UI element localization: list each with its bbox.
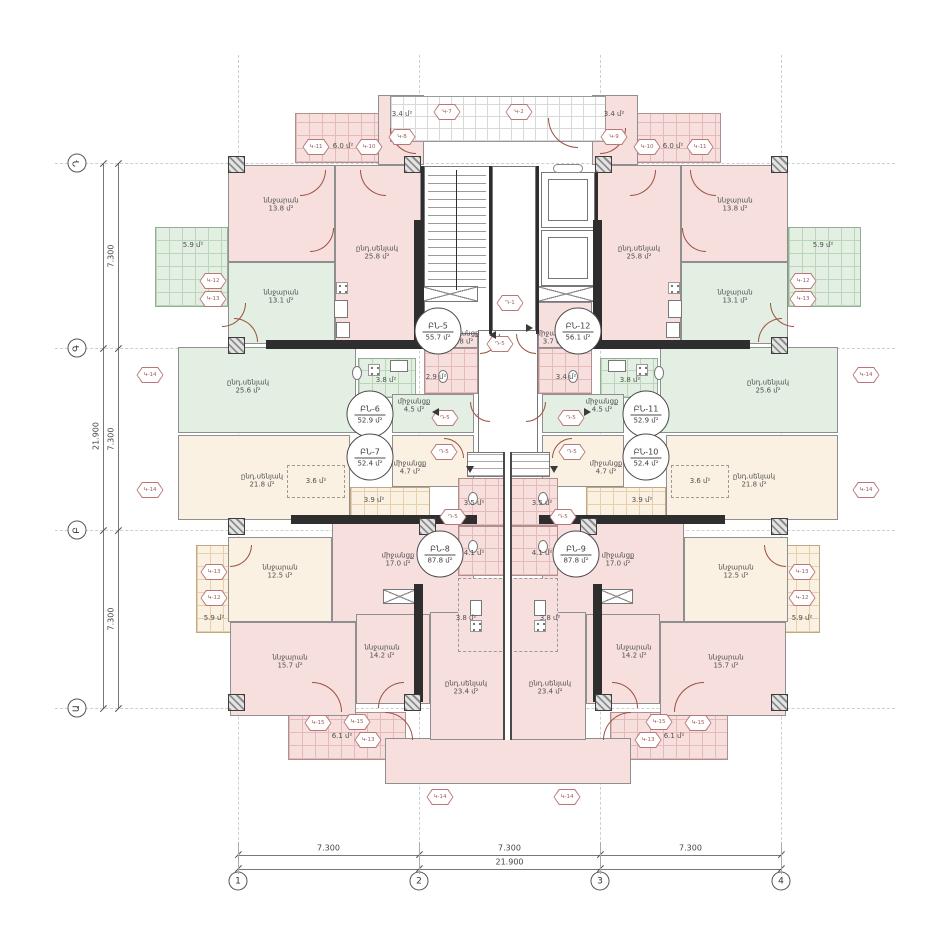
room-label: ննջարան13.8 մ² (263, 197, 298, 214)
hex-marker: Կ-14 (137, 482, 164, 498)
hex-marker-label: Դ-5 (432, 445, 457, 459)
apartment-badge: ԲՆ-887.8 մ² (417, 531, 464, 578)
apartment-area: 52.4 մ² (357, 458, 382, 467)
hex-marker-label: Կ-2 (507, 105, 532, 119)
hex-marker-label: Կ-14 (138, 368, 163, 382)
apartment-badge: ԲՆ-752.4 մ² (347, 434, 394, 481)
apartment-area: 52.4 մ² (633, 458, 658, 467)
room-label: 3.8 մ² (376, 376, 397, 384)
room-label: միջանցք4.5 մ² (398, 398, 431, 415)
column (404, 694, 421, 711)
apartment-id: ԲՆ-10 (630, 447, 662, 458)
room-label: 3.6 մ² (306, 477, 327, 485)
apartment-id: ԲՆ-12 (562, 321, 594, 332)
wall (414, 584, 423, 702)
room-label: ընդ.սենյակ25.8 մ² (618, 245, 660, 262)
door-arc (603, 712, 631, 740)
hex-marker-label: Կ-13 (636, 733, 661, 747)
room-label: 3.9 մ² (632, 496, 653, 504)
hex-marker: Կ-13 (789, 564, 816, 580)
dimension-line (238, 869, 781, 870)
room-label: ննջարան12.5 մ² (262, 564, 297, 581)
room-label: ընդ.սենյակ21.8 մ² (241, 473, 283, 490)
hex-marker-label: Կ-13 (356, 733, 381, 747)
hex-marker-label: Կ-12 (202, 591, 227, 605)
room-label: ննջարան13.1 մ² (717, 289, 752, 306)
room-label: 5.9 մ² (183, 241, 204, 249)
grid-bubble-label: 1 (235, 876, 241, 886)
toilet-icon (654, 366, 664, 380)
grid-bubble-label: 2 (416, 876, 422, 886)
hex-marker: Կ-15 (685, 715, 712, 731)
wall (489, 166, 492, 334)
room-label: ննջարան15.7 մ² (708, 654, 743, 671)
column (228, 694, 245, 711)
hex-marker: Կ-12 (790, 273, 817, 289)
hex-marker-label: Կ-10 (635, 140, 660, 154)
room-label: 6.1 մ² (332, 732, 353, 740)
hex-marker: Կ-14 (427, 789, 454, 805)
door-arc (385, 712, 413, 740)
door-direction-icon (526, 324, 533, 332)
hex-marker: Կ-9 (601, 129, 628, 145)
hex-marker: Կ-14 (853, 482, 880, 498)
hex-marker: Կ-10 (356, 139, 383, 155)
hex-marker-label: Կ-14 (854, 483, 879, 497)
hex-marker-label: Կ-14 (428, 790, 453, 804)
hex-marker: Դ-5 (550, 509, 577, 525)
column (595, 694, 612, 711)
grid-bubble-label: Գ (72, 345, 82, 352)
hex-marker: Կ-11 (687, 139, 714, 155)
stove-icon (368, 364, 380, 376)
elevator-2-car (548, 237, 588, 279)
hex-marker: Դ-1 (497, 295, 524, 311)
apartment-area: 55.7 մ² (425, 332, 450, 341)
shaft (538, 286, 594, 302)
terrace-6-0-right (636, 113, 721, 163)
hex-marker-label: Կ-13 (202, 565, 227, 579)
grid-bubble-row: Գ (68, 339, 87, 358)
room-label: 3.4 մ² (392, 110, 413, 118)
hex-marker-label: Կ-13 (790, 565, 815, 579)
hex-marker-label: Կ-12 (201, 274, 226, 288)
room-label: 3.5 մ² (464, 499, 485, 507)
wall (456, 170, 457, 290)
hex-marker-label: Կ-11 (688, 140, 713, 154)
room-label: 6.0 մ² (333, 142, 354, 150)
apartment-area: 52.9 մ² (633, 415, 658, 424)
hex-marker-label: Կ-10 (357, 140, 382, 154)
column (771, 518, 788, 535)
hex-marker: Կ-11 (303, 139, 330, 155)
hex-marker: Կ-12 (789, 590, 816, 606)
hex-marker: Կ-12 (201, 590, 228, 606)
column (771, 156, 788, 173)
hex-marker-label: Դ-5 (488, 337, 513, 351)
floor-plan-canvas: +7.350 3-րդ հարկ 6.0 մ²6.0 մ²3.4 մ²3.4 մ… (0, 0, 950, 950)
grid-bubble-label: Ա (72, 705, 82, 712)
grid-bubble-row: Դ (68, 154, 87, 173)
hex-marker-label: Դ-5 (551, 510, 576, 524)
hex-marker-label: Կ-12 (791, 274, 816, 288)
grid-bubble-row: Բ (68, 521, 87, 540)
hex-marker: Դ-5 (431, 444, 458, 460)
bath-3-4-right (538, 348, 592, 394)
sink-icon (390, 360, 408, 372)
sink-icon (668, 300, 682, 318)
dimension-value: 7.300 (107, 428, 116, 451)
apartment-id: ԲՆ-9 (560, 544, 592, 555)
hex-marker-label: Կ-14 (555, 790, 580, 804)
room-label: 3.4 մ² (556, 373, 577, 381)
hex-marker-label: Կ-15 (686, 716, 711, 730)
bath-2-9-left (424, 348, 478, 394)
room-label: 3.9 մ² (364, 496, 385, 504)
sink-icon (666, 322, 680, 338)
room-label: միջանցք4.7 մ² (394, 460, 427, 477)
room-label: ննջարան14.2 մ² (616, 644, 651, 661)
hex-marker-label: Դ-5 (441, 510, 466, 524)
room-label: 6.1 մ² (664, 732, 685, 740)
terrace-bottom (385, 738, 631, 784)
column (771, 694, 788, 711)
hex-marker-label: Կ-13 (201, 292, 226, 306)
room-label: ընդ.սենյակ23.4 մ² (445, 680, 487, 697)
apartment-id: ԲՆ-6 (354, 404, 386, 415)
hex-marker-label: Կ-15 (306, 716, 331, 730)
hex-marker-label: Դ-1 (498, 296, 523, 310)
hex-marker-label: Դ-5 (560, 445, 585, 459)
toilet-icon (352, 366, 362, 380)
apartment-badge: ԲՆ-987.8 մ² (553, 531, 600, 578)
party-wall (503, 452, 512, 740)
apartment-id: ԲՆ-11 (630, 404, 662, 415)
dimension-value: 7.300 (107, 608, 116, 631)
shaft (422, 286, 478, 302)
hex-marker-label: Կ-14 (138, 483, 163, 497)
extension-line (419, 842, 420, 874)
apartment-area: 56.1 մ² (565, 332, 590, 341)
apartment-badge: ԲՆ-1152.9 մ² (623, 391, 670, 438)
wardrobe (383, 589, 416, 604)
hex-marker: Կ-14 (554, 789, 581, 805)
hex-marker-label: Կ-8 (390, 130, 415, 144)
room-label: ննջարան14.2 մ² (364, 644, 399, 661)
hex-marker: Դ-5 (558, 410, 585, 426)
grid-bubble-label: Դ (72, 160, 82, 167)
hex-marker: Կ-13 (635, 732, 662, 748)
extension-line (781, 842, 782, 874)
hex-marker-label: Կ-7 (435, 105, 460, 119)
column (404, 156, 421, 173)
hex-marker: Կ-15 (646, 714, 673, 730)
room-label: միջանցք17.0 մ² (382, 552, 415, 569)
room-label: ննջարան12.5 մ² (718, 564, 753, 581)
grid-bubble-column: 2 (410, 872, 429, 891)
dimension-value: 7.300 (498, 844, 521, 853)
room-label: 3.4 մ² (604, 110, 625, 118)
room-label: ընդ.սենյակ25.6 մ² (227, 379, 269, 396)
hex-marker: Կ-13 (355, 732, 382, 748)
hex-marker-label: Կ-13 (791, 292, 816, 306)
room-label: 3.8 մ² (540, 614, 561, 622)
room-label: ընդ.սենյակ23.4 մ² (529, 680, 571, 697)
apartment-id: ԲՆ-8 (424, 544, 456, 555)
wall (595, 168, 598, 290)
elevator-1-car (548, 179, 588, 221)
room-label: 5.9 մ² (813, 241, 834, 249)
apartment-badge: ԲՆ-1256.1 մ² (555, 308, 602, 355)
dimension-value: 7.300 (317, 844, 340, 853)
hex-marker-label: Կ-14 (854, 368, 879, 382)
sink-icon (336, 322, 350, 338)
grid-bubble-row: Ա (68, 699, 87, 718)
extension-line (600, 842, 601, 874)
hex-marker: Կ-14 (853, 367, 880, 383)
room-label: միջանցք17.0 մ² (602, 552, 635, 569)
column (595, 156, 612, 173)
hex-marker-label: Դ-5 (559, 411, 584, 425)
elevator-tag (553, 164, 583, 173)
room-label: ընդ.սենյակ25.8 մ² (356, 245, 398, 262)
room-label: 2.9 մ² (426, 373, 447, 381)
hex-marker: Կ-15 (344, 714, 371, 730)
room-label: ննջարան15.7 մ² (272, 654, 307, 671)
hex-marker-label: Կ-12 (790, 591, 815, 605)
grid-bubble-column: 1 (229, 872, 248, 891)
wardrobe (600, 589, 633, 604)
apartment-id: ԲՆ-5 (422, 321, 454, 332)
door-direction-icon (550, 466, 558, 473)
room-label: ընդ.սենյակ21.8 մ² (733, 473, 775, 490)
hex-marker-label: Կ-9 (602, 130, 627, 144)
dimension-line (103, 163, 104, 708)
stair-treads (428, 172, 486, 288)
hex-marker: Դ-5 (559, 444, 586, 460)
dimension-line (118, 163, 119, 708)
grid-bubble-column: 3 (591, 872, 610, 891)
room-label: 3.5 մ² (532, 499, 553, 507)
apartment-id: ԲՆ-7 (354, 447, 386, 458)
grid-bubble-label: 3 (597, 876, 603, 886)
hex-marker: Կ-2 (506, 104, 533, 120)
column (228, 156, 245, 173)
door-direction-icon (489, 331, 496, 339)
room-label: 3.8 մ² (456, 614, 477, 622)
hex-marker: Դ-5 (440, 509, 467, 525)
sink-icon (334, 300, 348, 318)
dimension-value: 7.300 (107, 244, 116, 267)
column (228, 518, 245, 535)
hex-marker: Կ-15 (305, 715, 332, 731)
grid-axis-horizontal (55, 163, 895, 164)
hex-marker: Կ-12 (200, 273, 227, 289)
hex-marker: Կ-13 (201, 564, 228, 580)
wall (266, 340, 418, 349)
dimension-value: 7.300 (679, 844, 702, 853)
hex-marker-label: Կ-15 (647, 715, 672, 729)
hex-marker-label: Կ-11 (304, 140, 329, 154)
dimension-total: 21.900 (493, 858, 527, 867)
door-direction-icon (466, 466, 474, 473)
dimension-line (238, 855, 781, 856)
stove-icon (636, 364, 648, 376)
wall (598, 340, 750, 349)
hex-marker: Կ-13 (200, 291, 227, 307)
apartment-badge: ԲՆ-652.9 մ² (347, 391, 394, 438)
room-label: ընդ.սենյակ25.6 մ² (747, 379, 789, 396)
apartment-badge: ԲՆ-555.7 մ² (415, 308, 462, 355)
room-label: ննջարան13.1 մ² (263, 289, 298, 306)
hex-marker: Կ-8 (389, 129, 416, 145)
hex-marker: Կ-10 (634, 139, 661, 155)
apartment-area: 87.8 մ² (563, 555, 588, 564)
terrace-6-0-left (295, 113, 380, 163)
room-label: 5.9 մ² (204, 614, 225, 622)
dimension-total: 21.900 (92, 419, 101, 453)
wall (593, 584, 602, 702)
door-direction-icon (432, 408, 439, 416)
grid-bubble-column: 4 (772, 872, 791, 891)
room-label: 3.8 մ² (620, 376, 641, 384)
hex-marker: Կ-13 (790, 291, 817, 307)
extension-line (238, 842, 239, 874)
apartment-area: 52.9 մ² (357, 415, 382, 424)
room-label: ննջարան13.8 մ² (717, 197, 752, 214)
hex-marker: Կ-14 (137, 367, 164, 383)
grid-bubble-label: Բ (72, 527, 82, 534)
door-direction-icon (584, 408, 591, 416)
room-label: 5.9 մ² (792, 614, 813, 622)
grid-bubble-label: 4 (778, 876, 784, 886)
room-label: 4.1 մ² (464, 549, 485, 557)
hex-marker-label: Կ-15 (345, 715, 370, 729)
stove-icon (668, 282, 680, 294)
wall (536, 166, 539, 334)
apartment-area: 87.8 մ² (427, 555, 452, 564)
stove-icon (336, 282, 348, 294)
room-label: 4.1 մ² (532, 549, 553, 557)
room-label: 3.6 մ² (690, 477, 711, 485)
sink-icon (608, 360, 626, 372)
room-label: 6.0 մ² (663, 142, 684, 150)
apartment-badge: ԲՆ-1052.4 մ² (623, 434, 670, 481)
hex-marker: Կ-7 (434, 104, 461, 120)
door-arc (548, 118, 578, 148)
room-label: միջանցք4.7 մ² (590, 460, 623, 477)
wall (421, 166, 424, 334)
